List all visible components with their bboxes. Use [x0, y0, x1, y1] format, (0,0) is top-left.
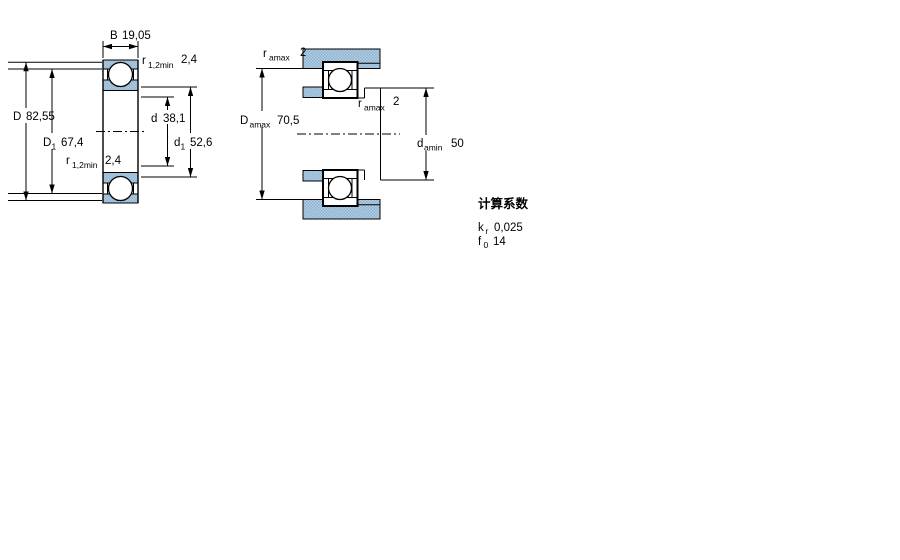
shaft-shoulder-top [303, 87, 323, 98]
dim-ra-sub: amax [269, 53, 291, 63]
factor-f0-sub: 0 [484, 240, 489, 250]
dimension-d: d 38,1 [141, 97, 192, 166]
factor-kr-letter: k [478, 222, 484, 234]
factor-kr-value: 0,025 [494, 222, 523, 234]
dimension-r12min-bottom: r 1,2min 2,4 [66, 155, 122, 170]
ball-top [109, 63, 133, 87]
dimension-D1: D 1 67,4 [8, 69, 102, 194]
bearing-drawing-svg: B 19,05 r 1,2min 2,4 D 82,55 D 1 67,4 [0, 0, 900, 560]
dim-D1-sub: 1 [52, 142, 57, 152]
dim-Damax-value: 70,5 [277, 115, 299, 127]
bearing-cross-section-figure: B 19,05 r 1,2min 2,4 D 82,55 D 1 67,4 [8, 30, 219, 203]
dim-ra-value: 2 [300, 47, 306, 59]
dim-d1-letter: d [174, 137, 180, 149]
ball-bottom [329, 177, 352, 200]
dimension-B: B 19,05 [103, 30, 151, 58]
dimension-d1: d 1 52,6 [141, 87, 219, 177]
dimension-r12min-top: r 1,2min 2,4 [142, 54, 198, 70]
dim-r-sub: 1,2min [72, 160, 98, 170]
technical-drawing-page: B 19,05 r 1,2min 2,4 D 82,55 D 1 67,4 [0, 0, 900, 560]
ball-top [329, 69, 352, 92]
dim-damin-sub: amin [424, 143, 443, 153]
dimension-D: D 82,55 [8, 62, 102, 200]
factors-heading: 计算系数 [478, 196, 529, 211]
ball-bottom [109, 177, 133, 201]
dim-d1-value: 52,6 [190, 137, 212, 149]
factor-kr: k r 0,025 [478, 222, 523, 236]
dim-ra-sub: amax [364, 103, 386, 113]
dim-ra-letter: r [358, 98, 362, 110]
dim-B-value: 19,05 [122, 30, 151, 42]
mounting-dimensions-figure: r amax 2 D amax 70,5 r amax 2 d amin [237, 47, 468, 219]
factor-f0: f 0 14 [478, 236, 506, 250]
dim-Damax-sub: amax [250, 120, 272, 130]
dim-D1-value: 67,4 [61, 137, 84, 149]
factor-f0-value: 14 [493, 236, 506, 248]
factor-kr-sub: r [486, 226, 489, 236]
dim-D1-letter: D [43, 137, 51, 149]
dim-D-value: 82,55 [26, 111, 55, 123]
dim-ra-letter: r [263, 48, 267, 60]
dim-ra-value: 2 [393, 96, 399, 108]
dim-damin-letter: d [417, 138, 423, 150]
dim-d-value: 38,1 [163, 113, 185, 125]
dim-d1-sub: 1 [181, 142, 186, 152]
shaft-shoulder-bottom [303, 171, 323, 182]
dim-B-letter: B [110, 30, 118, 42]
dim-r-sub: 1,2min [148, 60, 174, 70]
dimension-ramax-top: r amax 2 [263, 47, 306, 63]
dim-r-letter: r [142, 55, 146, 67]
dim-r-value: 2,4 [105, 155, 122, 167]
dim-D-letter: D [13, 111, 21, 123]
dim-r-letter: r [66, 155, 70, 167]
dim-damin-value: 50 [451, 138, 464, 150]
factor-f0-letter: f [478, 236, 482, 248]
dim-Damax-letter: D [240, 115, 248, 127]
dim-d-letter: d [151, 113, 157, 125]
dim-r-value: 2,4 [181, 54, 198, 66]
calculation-factors: 计算系数 k r 0,025 f 0 14 [478, 196, 529, 250]
